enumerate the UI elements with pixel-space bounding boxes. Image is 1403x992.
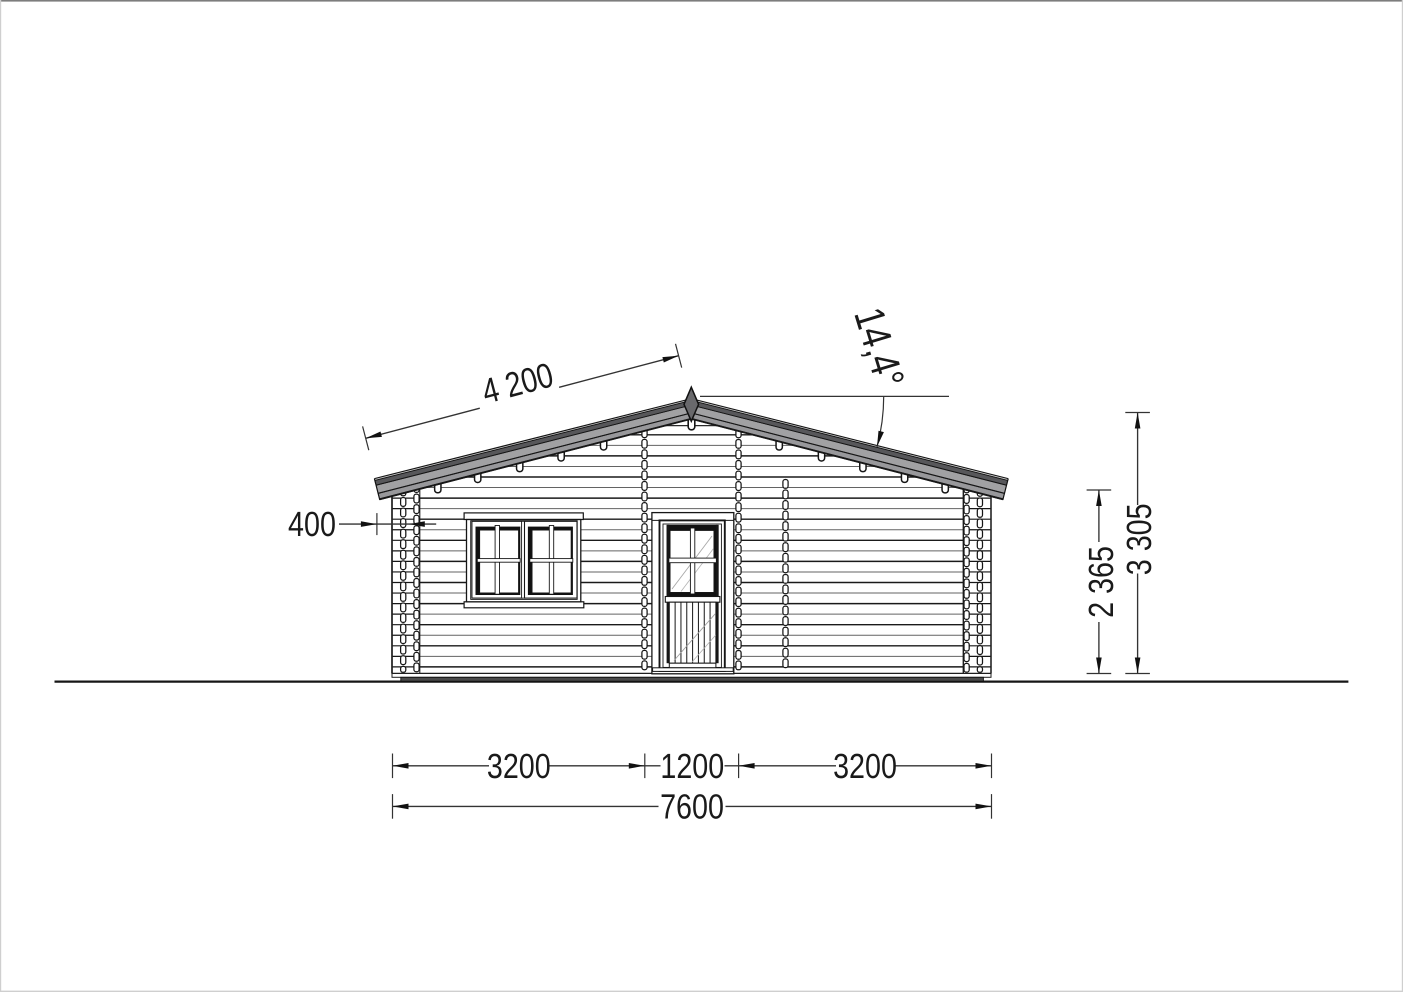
svg-text:2 365: 2 365 — [1082, 546, 1121, 618]
svg-text:3200: 3200 — [833, 747, 897, 786]
svg-text:7600: 7600 — [660, 788, 724, 827]
svg-text:400: 400 — [288, 505, 336, 544]
svg-text:3200: 3200 — [487, 747, 551, 786]
svg-text:3 305: 3 305 — [1120, 503, 1159, 575]
svg-text:1200: 1200 — [660, 747, 724, 786]
